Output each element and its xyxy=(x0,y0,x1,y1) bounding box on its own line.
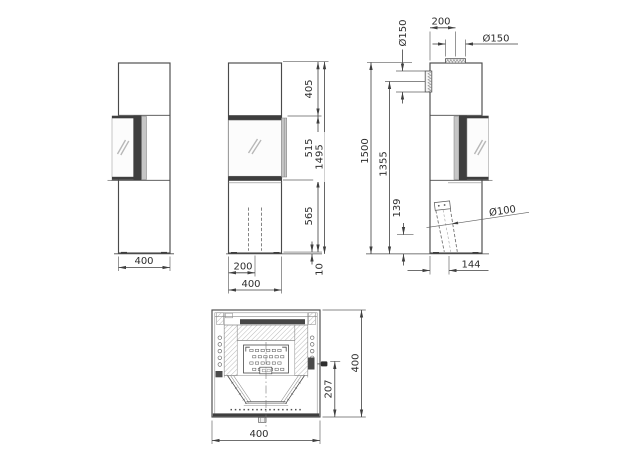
top-view-front-latch xyxy=(259,417,266,422)
side-b-door-frame xyxy=(459,116,467,180)
view-side-a: 400 xyxy=(108,63,175,271)
side-a-door xyxy=(112,116,147,180)
dim-top-handle-depth: 207 xyxy=(324,361,341,417)
top-view-hinge-block-right xyxy=(308,358,315,370)
dim-side-b-rear-flue-height: 1355 xyxy=(379,82,426,254)
dim-top-handle-depth-label: 207 xyxy=(324,379,335,398)
dim-front-total-height: 1495 xyxy=(313,62,325,254)
top-view-rear-corner-left xyxy=(217,313,224,325)
side-a-door-hinge-strip xyxy=(142,117,147,180)
door-handle xyxy=(321,361,328,366)
dim-side-b-rear-flue-height-label: 1355 xyxy=(379,151,390,176)
dim-front-top-section-label: 405 xyxy=(304,79,315,98)
dim-front-pipe-offset: 200 xyxy=(229,256,256,277)
dim-front-pipe-offset-label: 200 xyxy=(233,262,252,273)
dim-side-b-air-inlet-height-label: 139 xyxy=(392,198,403,217)
dim-side-b-air-inlet-offset-label: 144 xyxy=(461,260,480,271)
technical-drawing-page: 400 405 515 565 xyxy=(0,0,624,460)
top-view-rear-corner-right xyxy=(309,313,316,325)
dim-top-width-label: 400 xyxy=(249,429,268,440)
dim-front-floor-gap-label: 10 xyxy=(314,263,325,276)
front-door-bottom-frame xyxy=(229,176,282,181)
side-a-door-top-cap xyxy=(112,116,142,119)
dim-side-b-air-inlet-diameter-label: Ø100 xyxy=(488,203,516,219)
dim-side-b-top-flue-offset: 200 xyxy=(430,17,456,61)
side-b-door xyxy=(454,116,493,181)
dim-side-b-top-flue-offset-label: 200 xyxy=(431,17,450,28)
dim-side-b-top-flue-diameter-label: Ø150 xyxy=(483,33,510,45)
dim-front-base-section-label: 565 xyxy=(304,206,315,225)
dim-front-top-section: 405 xyxy=(304,62,318,116)
side-a-door-glass xyxy=(112,116,134,180)
rear-flue-outlet xyxy=(425,71,432,92)
dim-side-b-rear-flue-diameter: Ø150 xyxy=(396,20,425,104)
dim-front-total-height-label: 1495 xyxy=(314,144,325,169)
top-view-latch-block-left xyxy=(216,371,223,377)
dim-side-a-width: 400 xyxy=(119,256,171,271)
view-top: 400 400 207 xyxy=(212,310,366,444)
top-flue-outlet xyxy=(446,59,466,63)
dim-top-depth: 400 xyxy=(323,310,366,417)
dim-front-width-label: 400 xyxy=(241,279,260,290)
stove-dimension-drawing: 400 405 515 565 xyxy=(0,0,624,460)
dim-front-base-section: 565 xyxy=(304,180,318,252)
dim-side-b-air-inlet-height: 139 xyxy=(392,198,414,265)
side-b-door-bottom-cap xyxy=(459,177,489,180)
view-side-b: 200 Ø150 Ø150 1500 1355 xyxy=(360,17,529,275)
dim-front-floor-gap: 10 xyxy=(312,242,325,279)
dim-top-width: 400 xyxy=(212,421,320,445)
dim-side-a-width-label: 400 xyxy=(134,256,153,267)
front-door-top-frame xyxy=(229,115,282,120)
view-front: 405 515 565 1495 10 200 xyxy=(226,62,329,294)
side-a-door-bottom-cap xyxy=(112,177,142,180)
dim-side-b-total-height-label: 1500 xyxy=(360,138,371,163)
dim-top-depth-label: 400 xyxy=(350,353,361,372)
side-b-door-top-cap xyxy=(459,116,489,119)
top-view-rear-baffle xyxy=(240,319,305,324)
side-a-door-frame xyxy=(134,116,142,180)
dim-side-b-top-flue-diameter: Ø150 xyxy=(433,33,519,57)
dim-side-b-air-inlet-offset: 144 xyxy=(408,256,489,275)
side-b-door-hinge-strip xyxy=(454,117,459,180)
dim-side-b-rear-flue-diameter-label: Ø150 xyxy=(397,20,409,47)
